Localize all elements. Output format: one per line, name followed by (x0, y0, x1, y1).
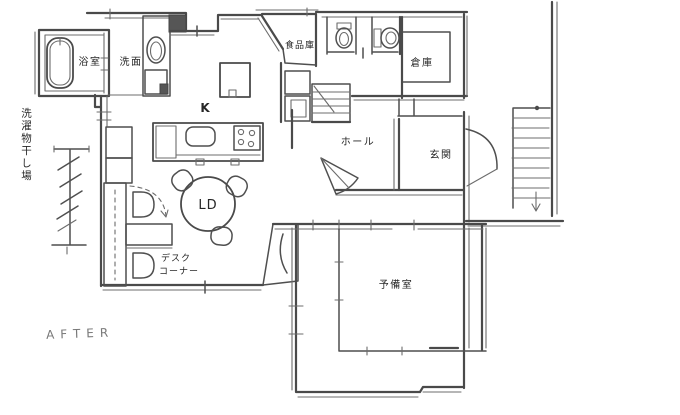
laundry-area-label: 洗濯物干し場 (20, 108, 32, 183)
after-annotation: AFTER (46, 325, 115, 341)
curved-nook (263, 224, 298, 285)
desk-corner-label-1: デスク (161, 252, 191, 264)
pantry-label: 食品庫 (285, 39, 315, 51)
interior-staircase (312, 84, 350, 122)
pantry-room (256, 8, 318, 66)
down-arrow (532, 192, 540, 211)
stair-rungs (512, 118, 550, 198)
bathtub (47, 38, 73, 88)
storage-inner-shelf (403, 32, 450, 82)
refrigerator (220, 63, 250, 97)
washroom-label: 洗面 (120, 56, 143, 68)
entrance-label: 玄関 (430, 148, 453, 161)
desk (126, 224, 172, 245)
spare-room (273, 220, 486, 397)
sink-bowl (151, 42, 162, 60)
kitchen-label: K (200, 101, 210, 115)
west-wall-window-ticks (97, 96, 111, 126)
chair (169, 167, 196, 194)
dashed-door-swing (130, 186, 166, 216)
spare-room-inner-wall-lines (275, 228, 486, 397)
hall-label: ホール (341, 136, 376, 148)
north-wing (316, 12, 467, 100)
bathroom-label: 浴室 (79, 55, 102, 68)
closet-cabinets (281, 63, 310, 122)
kitchen-counter (153, 123, 263, 165)
stove (234, 126, 260, 150)
kitchen-sink (186, 127, 215, 146)
pole-frame (52, 149, 89, 245)
toilet-tank (374, 29, 381, 47)
spare-room-label: 予備室 (379, 278, 414, 291)
toilet-room-2 (372, 17, 400, 54)
hall-door-swing (321, 158, 358, 194)
living-dining-label: LD (198, 198, 217, 213)
shoe-cabinet-walls (398, 99, 462, 116)
floor-plan-canvas: 浴室 洗面 食品庫 倉庫 K ホール 玄関 LD 予備室 デスク コーナー 洗濯… (0, 0, 680, 415)
toilet-room-1 (327, 17, 363, 58)
desk-chair (133, 192, 154, 217)
exterior-staircase (466, 2, 563, 226)
washing-machine-detail (160, 84, 168, 94)
swing-arrowhead (161, 210, 168, 217)
desk-chair (133, 253, 154, 278)
stair-treads (312, 86, 350, 113)
shelf-box (106, 158, 132, 183)
desk-corner-label-2: コーナー (159, 266, 199, 277)
north-wall-ticks (289, 220, 414, 334)
storage-room (352, 14, 467, 100)
floor-plan-sketch: 浴室 洗面 食品庫 倉庫 K ホール 玄関 LD 予備室 デスク コーナー 洗濯… (0, 0, 680, 415)
chair (210, 226, 232, 246)
sink (147, 37, 165, 63)
corner-wall-block (169, 15, 186, 32)
front-door-swing (466, 129, 497, 186)
laundry-drying-pole (52, 146, 89, 254)
storage-label: 倉庫 (411, 56, 434, 69)
entrance-room (394, 99, 497, 225)
shelf-box (106, 127, 132, 158)
spare-room-outer-walls (273, 224, 486, 392)
